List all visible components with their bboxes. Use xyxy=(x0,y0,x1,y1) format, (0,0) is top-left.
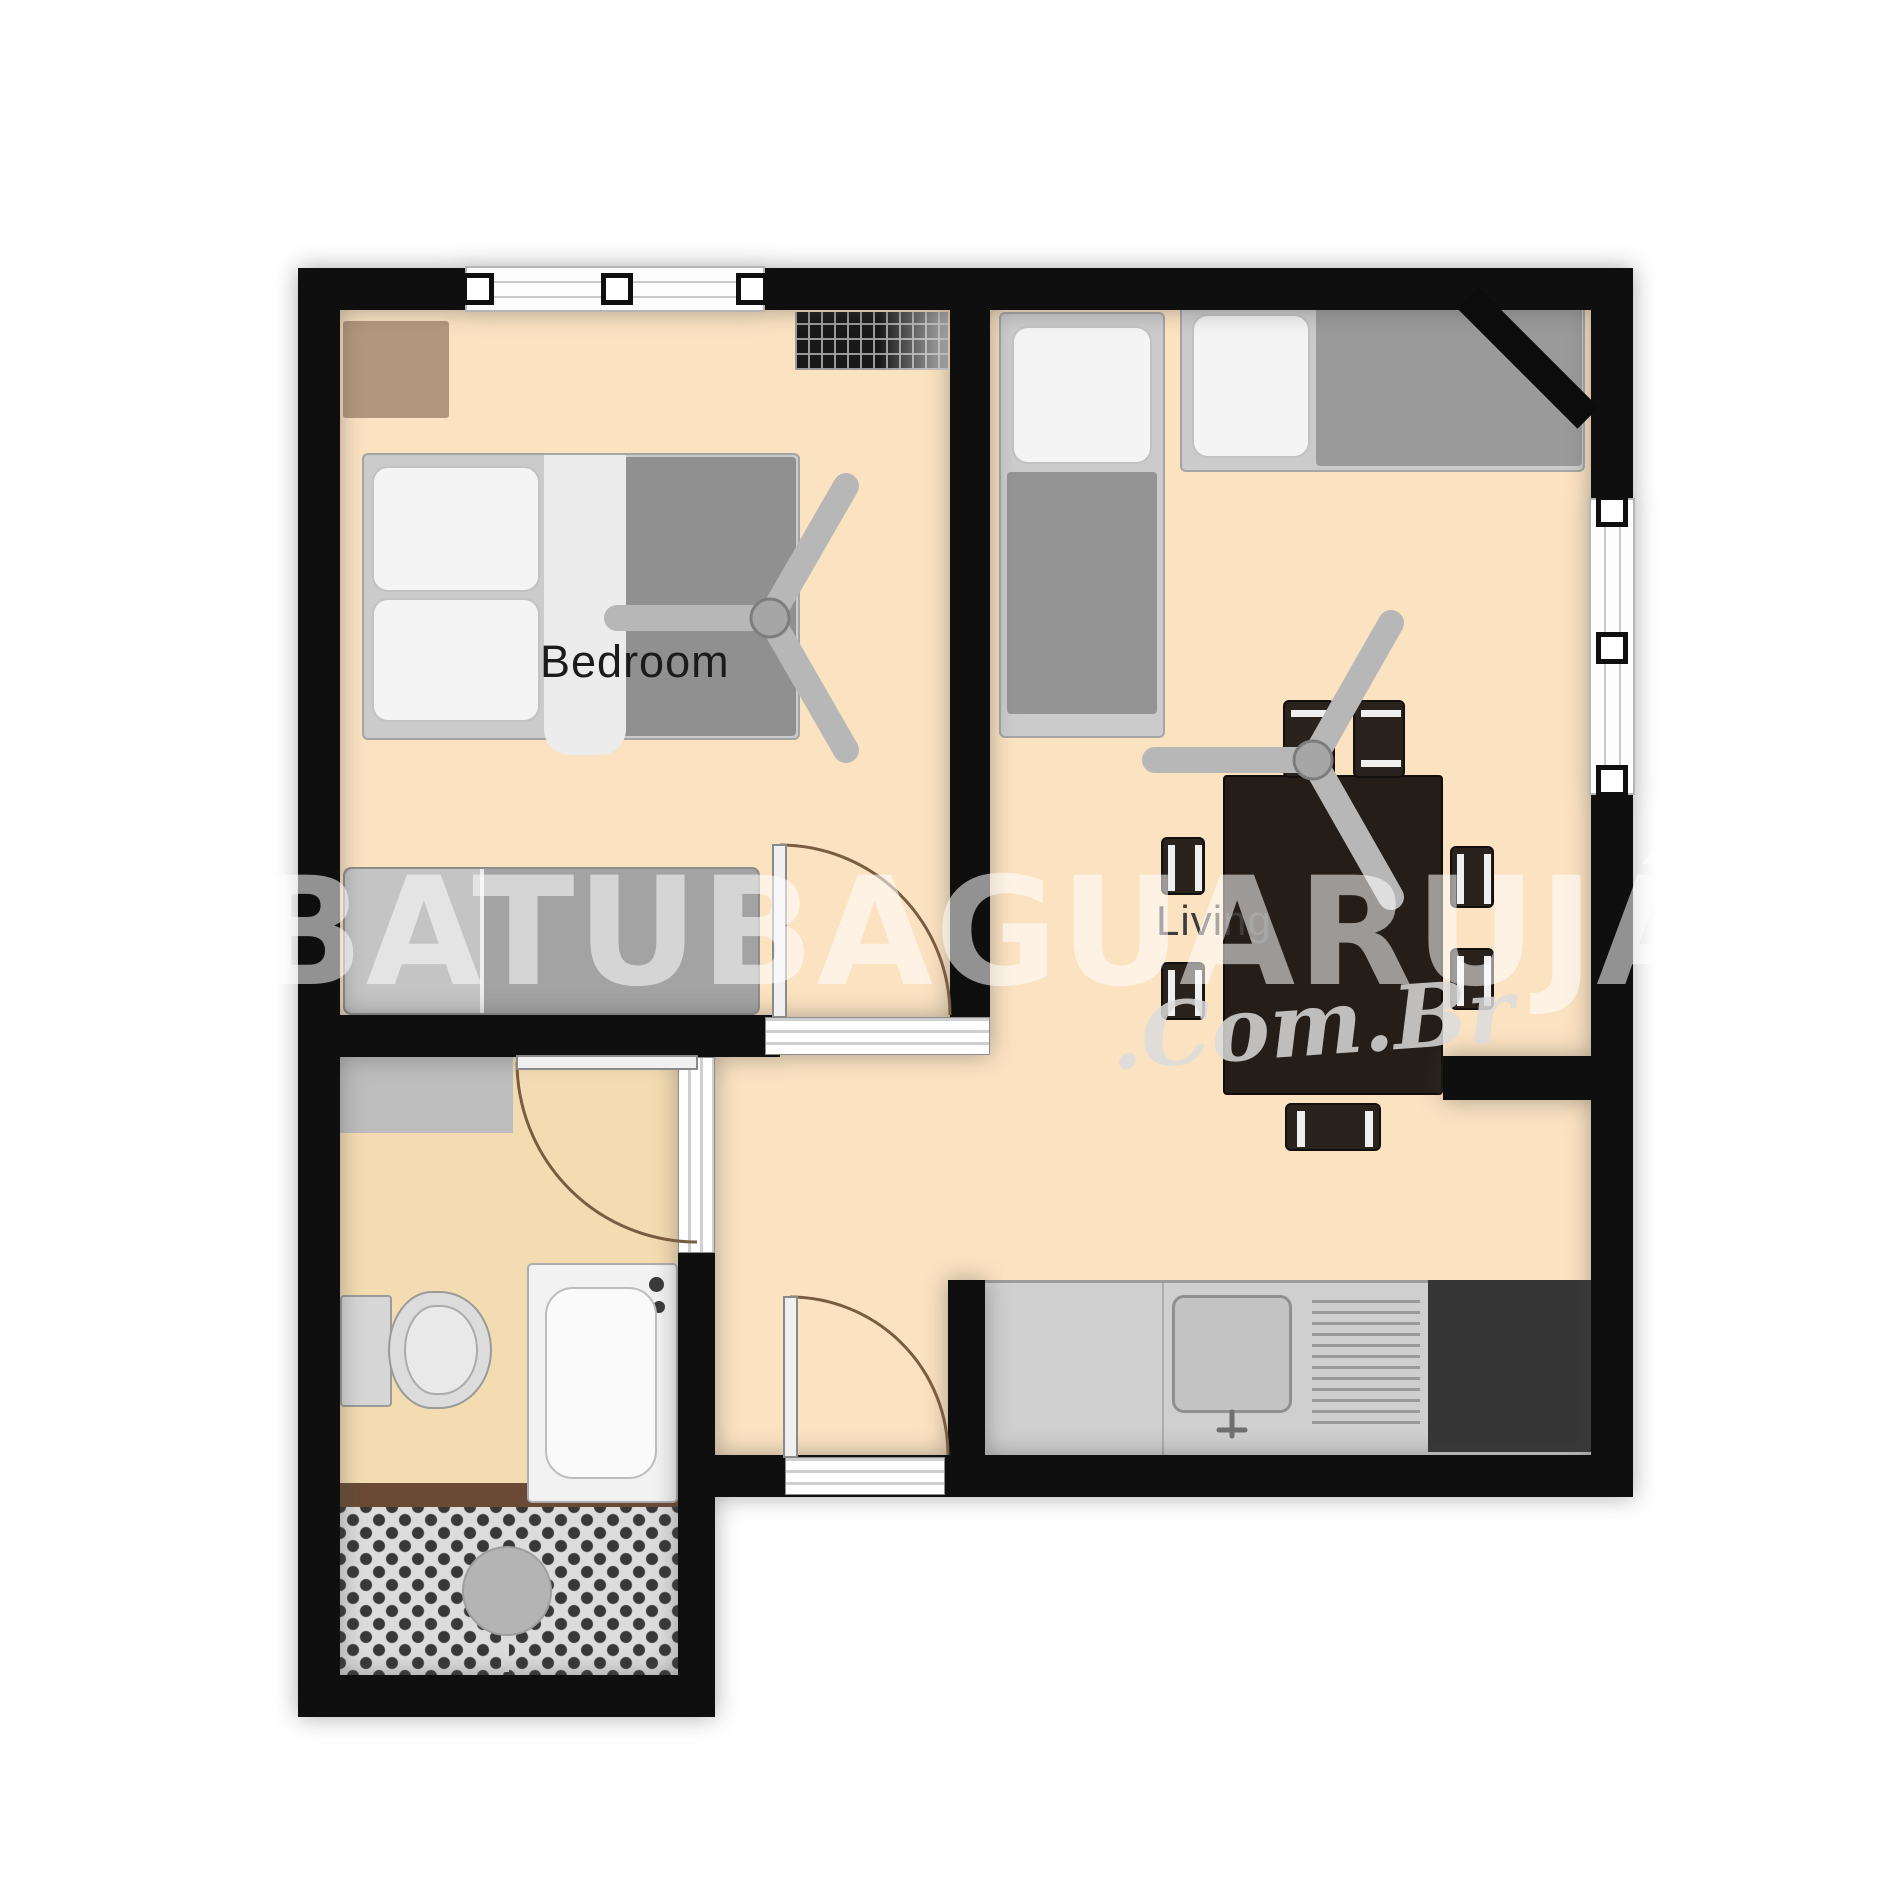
drainer-icon xyxy=(1312,1296,1420,1424)
living-window xyxy=(1589,498,1635,795)
dining-chair xyxy=(1285,1103,1381,1151)
entrance-door-sill xyxy=(785,1457,945,1495)
double-bed-sheet xyxy=(544,455,626,755)
dining-chair xyxy=(1450,846,1494,908)
dining-chair xyxy=(1283,700,1335,778)
sofa-bed-cushion xyxy=(345,869,480,1013)
toilet-seat xyxy=(404,1305,478,1395)
single-bed-vertical-blanket xyxy=(1007,472,1157,714)
bedroom-rug xyxy=(343,321,449,418)
living-label: Living xyxy=(1156,897,1272,945)
bed-pillow xyxy=(372,466,540,592)
ac-grille-icon xyxy=(795,312,948,370)
counter-divider xyxy=(1162,1283,1164,1455)
dining-chair xyxy=(1161,837,1205,895)
bed-pillow xyxy=(372,598,540,722)
sofa-bed-gap xyxy=(480,869,484,1013)
dining-chair xyxy=(1450,948,1494,1010)
wall-left xyxy=(298,268,340,1717)
wall-bottom-left-wing xyxy=(298,1675,715,1717)
kitchen-sink xyxy=(1172,1295,1292,1413)
window-mullion xyxy=(736,273,768,305)
stove-counter xyxy=(1428,1280,1593,1452)
wall-right xyxy=(1591,268,1633,1497)
window-mullion xyxy=(1596,632,1628,664)
wall-bottom-right-wing xyxy=(678,1455,1633,1497)
dining-chair xyxy=(1161,962,1205,1020)
single-bed-horizontal-pillow xyxy=(1192,314,1310,458)
toilet-tank xyxy=(340,1295,392,1407)
parasol-icon xyxy=(462,1546,552,1636)
bathtub-basin xyxy=(545,1287,657,1479)
dining-chair xyxy=(1353,700,1405,778)
window-mullion xyxy=(601,273,633,305)
window-mullion xyxy=(1596,495,1628,527)
single-bed-vertical-pillow xyxy=(1012,326,1152,464)
window-mullion xyxy=(462,273,494,305)
bedroom-label: Bedroom xyxy=(540,636,730,688)
window-mullion xyxy=(1596,765,1628,797)
floor-plan: Bedroom Living UBATUBAGUARUJÁ .Com.Br xyxy=(0,0,1900,1900)
double-bed-duvet xyxy=(614,457,796,736)
shower-mat xyxy=(340,1050,513,1133)
